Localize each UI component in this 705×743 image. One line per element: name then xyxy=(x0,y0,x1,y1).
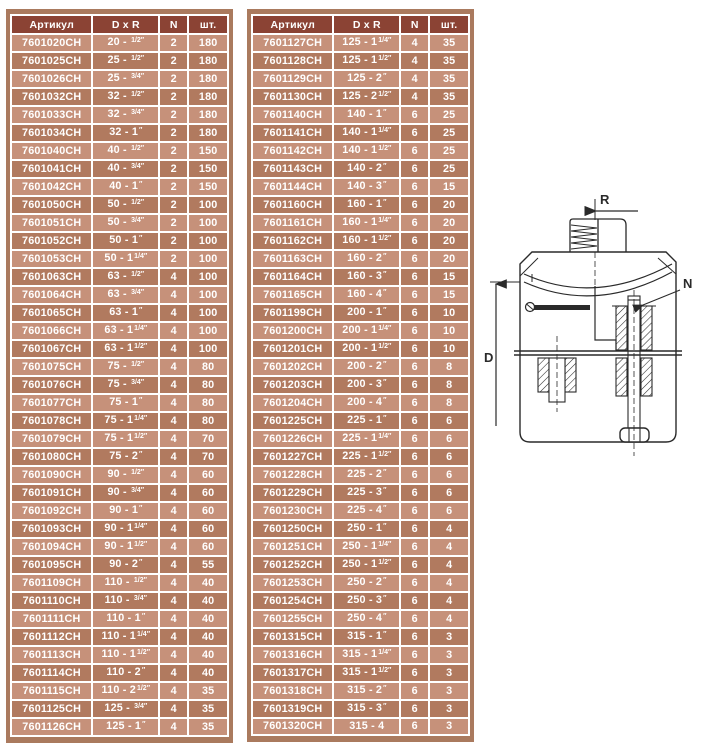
dxr-main: 250 - 2 xyxy=(347,576,382,588)
table-row: 7601320CH315 - 463 xyxy=(253,719,468,734)
dxr-main: 90 - 1 xyxy=(109,504,138,516)
n-cell: 6 xyxy=(401,161,428,177)
table-row: 7601026CH25 - 3/4″2180 xyxy=(12,71,227,87)
dxr-fraction: ″ xyxy=(383,163,386,170)
dxr-main: 40 - xyxy=(107,162,130,174)
dxr-fraction: ″ xyxy=(383,505,386,512)
n-cell: 4 xyxy=(160,485,187,501)
n-cell: 6 xyxy=(401,521,428,537)
dxr-main: 250 - 1 xyxy=(342,540,377,552)
qty-cell: 15 xyxy=(430,179,468,195)
qty-cell: 3 xyxy=(430,629,468,645)
dxr-main: 125 - 1 xyxy=(342,54,377,66)
dxr-cell: 63 - 11/2″ xyxy=(93,341,158,357)
table-row: 7601067CH63 - 11/2″4100 xyxy=(12,341,227,357)
dxr-cell: 90 - 2″ xyxy=(93,557,158,573)
dxr-fraction: ″ xyxy=(383,703,386,710)
article-cell: 7601252CH xyxy=(253,557,332,573)
table-row: 7601025CH25 - 1/2″2180 xyxy=(12,53,227,69)
dxr-main: 160 - 2 xyxy=(347,252,382,264)
n-cell: 4 xyxy=(160,683,187,699)
catalog-table-right-wrap: АртикулD x RNшт.7601127CH125 - 11/4″4357… xyxy=(247,9,474,742)
article-cell: 7601033CH xyxy=(12,107,91,123)
qty-cell: 180 xyxy=(189,125,227,141)
table-row: 7601075CH75 - 1/2″480 xyxy=(12,359,227,375)
qty-cell: 15 xyxy=(430,287,468,303)
table-row: 7601165CH160 - 4″615 xyxy=(253,287,468,303)
n-cell: 4 xyxy=(160,647,187,663)
table-row: 7601162CH160 - 11/2″620 xyxy=(253,233,468,249)
dxr-cell: 110 - 1/2″ xyxy=(93,575,158,591)
dxr-main: 225 - 3 xyxy=(347,486,382,498)
article-cell: 7601161CH xyxy=(253,215,332,231)
dxr-fraction: 1/4″ xyxy=(378,433,391,440)
table-row: 7601140CH140 - 1″625 xyxy=(253,107,468,123)
table-row: 7601163CH160 - 2″620 xyxy=(253,251,468,267)
dxr-main: 125 - 1 xyxy=(106,720,141,732)
n-cell: 2 xyxy=(160,215,187,231)
dxr-fraction: ″ xyxy=(383,523,386,530)
dxr-cell: 200 - 1″ xyxy=(334,305,399,321)
n-cell: 4 xyxy=(160,701,187,717)
n-cell: 4 xyxy=(160,467,187,483)
n-cell: 6 xyxy=(401,485,428,501)
dxr-fraction: ″ xyxy=(142,667,145,674)
table-row: 7601040CH40 - 1/2″2150 xyxy=(12,143,227,159)
article-cell: 7601127CH xyxy=(253,35,332,51)
article-cell: 7601143CH xyxy=(253,161,332,177)
qty-cell: 4 xyxy=(430,557,468,573)
qty-cell: 180 xyxy=(189,89,227,105)
dxr-cell: 315 - 11/2″ xyxy=(334,665,399,681)
qty-cell: 35 xyxy=(189,719,227,735)
dxr-fraction: 1/4″ xyxy=(378,37,391,44)
table-row: 7601076CH75 - 3/4″480 xyxy=(12,377,227,393)
article-cell: 7601227CH xyxy=(253,449,332,465)
article-cell: 7601112CH xyxy=(12,629,91,645)
table-row: 7601227CH225 - 11/2″66 xyxy=(253,449,468,465)
dxr-main: 160 - 3 xyxy=(347,270,382,282)
dxr-fraction: ″ xyxy=(383,487,386,494)
n-cell: 4 xyxy=(160,557,187,573)
dxr-fraction: 1/2″ xyxy=(131,55,144,62)
dxr-cell: 250 - 3″ xyxy=(334,593,399,609)
dxr-main: 315 - 1 xyxy=(342,666,377,678)
qty-cell: 55 xyxy=(189,557,227,573)
dxr-cell: 25 - 3/4″ xyxy=(93,71,158,87)
dxr-fraction: 1/2″ xyxy=(378,145,391,152)
dxr-main: 110 - 2 xyxy=(102,684,136,696)
dxr-main: 160 - 1 xyxy=(342,234,377,246)
n-cell: 4 xyxy=(160,431,187,447)
dxr-cell: 250 - 1″ xyxy=(334,521,399,537)
dxr-fraction: ″ xyxy=(383,379,386,386)
dxr-fraction: ″ xyxy=(383,181,386,188)
article-cell: 7601026CH xyxy=(12,71,91,87)
dxr-cell: 50 - 1″ xyxy=(93,233,158,249)
dxr-main: 225 - 1 xyxy=(342,450,377,462)
n-cell: 6 xyxy=(401,467,428,483)
article-cell: 7601130CH xyxy=(253,89,332,105)
table-row: 7601115CH110 - 21/2″435 xyxy=(12,683,227,699)
dxr-fraction: 1/2″ xyxy=(134,433,147,440)
dxr-main: 200 - 2 xyxy=(347,360,382,372)
table-row: 7601160CH160 - 1″620 xyxy=(253,197,468,213)
article-cell: 7601253CH xyxy=(253,575,332,591)
article-cell: 7601201CH xyxy=(253,341,332,357)
n-cell: 6 xyxy=(401,251,428,267)
dxr-main: 110 - 2 xyxy=(106,666,140,678)
qty-cell: 35 xyxy=(430,89,468,105)
n-cell: 4 xyxy=(160,719,187,735)
qty-cell: 3 xyxy=(430,647,468,663)
qty-cell: 10 xyxy=(430,305,468,321)
table-row: 7601201CH200 - 11/2″610 xyxy=(253,341,468,357)
dxr-fraction: 1/2″ xyxy=(131,469,144,476)
dxr-fraction: ″ xyxy=(383,109,386,116)
dxr-main: 63 - xyxy=(107,288,130,300)
table-row: 7601252CH250 - 11/2″64 xyxy=(253,557,468,573)
dxr-cell: 32 - 1″ xyxy=(93,125,158,141)
dxr-fraction: 1/2″ xyxy=(131,271,144,278)
dxr-cell: 140 - 1″ xyxy=(334,107,399,123)
n-cell: 4 xyxy=(160,395,187,411)
table-row: 7601125CH125 - 3/4″435 xyxy=(12,701,227,717)
dxr-main: 140 - 3 xyxy=(347,180,382,192)
dxr-fraction: 1/4″ xyxy=(134,523,147,530)
dxr-fraction: 3/4″ xyxy=(131,379,144,386)
table-row: 7601129CH125 - 2″435 xyxy=(253,71,468,87)
n-cell: 6 xyxy=(401,647,428,663)
table-row: 7601228CH225 - 2″66 xyxy=(253,467,468,483)
n-cell: 6 xyxy=(401,503,428,519)
qty-cell: 4 xyxy=(430,575,468,591)
internal-contour xyxy=(595,252,616,350)
dxr-main: 75 - xyxy=(107,360,130,372)
dxr-cell: 250 - 11/4″ xyxy=(334,539,399,555)
dxr-main: 250 - 1 xyxy=(342,558,377,570)
dimension-r: R xyxy=(595,192,638,220)
qty-cell: 100 xyxy=(189,269,227,285)
dxr-cell: 50 - 11/4″ xyxy=(93,251,158,267)
qty-cell: 100 xyxy=(189,197,227,213)
dxr-fraction: 3/4″ xyxy=(131,289,144,296)
qty-cell: 15 xyxy=(430,269,468,285)
dxr-fraction: ″ xyxy=(383,577,386,584)
dxr-cell: 140 - 11/2″ xyxy=(334,143,399,159)
label-n: N xyxy=(683,276,692,291)
article-cell: 7601078CH xyxy=(12,413,91,429)
col-header-1: D x R xyxy=(93,16,158,33)
dxr-cell: 63 - 1″ xyxy=(93,305,158,321)
dxr-main: 200 - 1 xyxy=(347,306,382,318)
dxr-fraction: 1/4″ xyxy=(378,541,391,548)
table-row: 7601041CH40 - 3/4″2150 xyxy=(12,161,227,177)
n-cell: 2 xyxy=(160,197,187,213)
dxr-cell: 110 - 21/2″ xyxy=(93,683,158,699)
qty-cell: 100 xyxy=(189,287,227,303)
dxr-main: 50 - xyxy=(107,216,130,228)
n-cell: 6 xyxy=(401,719,428,734)
dxr-cell: 75 - 1/2″ xyxy=(93,359,158,375)
table-row: 7601255CH250 - 4″64 xyxy=(253,611,468,627)
dxr-main: 225 - 2 xyxy=(347,468,382,480)
table-row: 7601200CH200 - 11/4″610 xyxy=(253,323,468,339)
dxr-main: 90 - 1 xyxy=(104,540,133,552)
article-cell: 7601066CH xyxy=(12,323,91,339)
dxr-fraction: ″ xyxy=(139,505,142,512)
article-cell: 7601250CH xyxy=(253,521,332,537)
split-line xyxy=(514,351,682,355)
article-cell: 7601144CH xyxy=(253,179,332,195)
qty-cell: 60 xyxy=(189,503,227,519)
dxr-fraction: ″ xyxy=(139,559,142,566)
dxr-cell: 160 - 1″ xyxy=(334,197,399,213)
dxr-main: 200 - 3 xyxy=(347,378,382,390)
article-cell: 7601065CH xyxy=(12,305,91,321)
dxr-cell: 200 - 4″ xyxy=(334,395,399,411)
table-row: 7601250CH250 - 1″64 xyxy=(253,521,468,537)
article-cell: 7601110CH xyxy=(12,593,91,609)
article-cell: 7601125CH xyxy=(12,701,91,717)
n-cell: 4 xyxy=(160,665,187,681)
dxr-cell: 125 - 2″ xyxy=(334,71,399,87)
qty-cell: 80 xyxy=(189,377,227,393)
n-cell: 6 xyxy=(401,215,428,231)
dxr-main: 50 - xyxy=(107,198,130,210)
table-row: 7601078CH75 - 11/4″480 xyxy=(12,413,227,429)
qty-cell: 80 xyxy=(189,359,227,375)
dxr-cell: 125 - 3/4″ xyxy=(93,701,158,717)
dxr-fraction: 1/2″ xyxy=(134,343,147,350)
qty-cell: 6 xyxy=(430,449,468,465)
dxr-cell: 225 - 11/2″ xyxy=(334,449,399,465)
qty-cell: 40 xyxy=(189,593,227,609)
table-row: 7601254CH250 - 3″64 xyxy=(253,593,468,609)
dxr-main: 250 - 1 xyxy=(347,522,382,534)
dxr-main: 225 - 1 xyxy=(347,414,382,426)
dimension-d: D xyxy=(484,282,520,426)
dxr-main: 125 - 1 xyxy=(342,36,377,48)
dxr-main: 40 - xyxy=(107,144,130,156)
table-row: 7601034CH32 - 1″2180 xyxy=(12,125,227,141)
catalog-table-right: АртикулD x RNшт.7601127CH125 - 11/4″4357… xyxy=(251,14,470,736)
dxr-cell: 75 - 2″ xyxy=(93,449,158,465)
dxr-main: 63 - 1 xyxy=(104,324,133,336)
article-cell: 7601093CH xyxy=(12,521,91,537)
table-row: 7601204CH200 - 4″68 xyxy=(253,395,468,411)
table-row: 7601065CH63 - 1″4100 xyxy=(12,305,227,321)
dxr-fraction: ″ xyxy=(383,289,386,296)
table-row: 7601144CH140 - 3″615 xyxy=(253,179,468,195)
n-cell: 4 xyxy=(160,539,187,555)
dxr-cell: 160 - 11/2″ xyxy=(334,233,399,249)
dxr-main: 200 - 1 xyxy=(342,342,377,354)
dxr-main: 140 - 1 xyxy=(342,126,377,138)
qty-cell: 10 xyxy=(430,323,468,339)
table-row: 7601066CH63 - 11/4″4100 xyxy=(12,323,227,339)
n-cell: 6 xyxy=(401,395,428,411)
n-cell: 6 xyxy=(401,323,428,339)
n-cell: 4 xyxy=(160,593,187,609)
dxr-fraction: 1/4″ xyxy=(137,631,150,638)
table-row: 7601093CH90 - 11/4″460 xyxy=(12,521,227,537)
qty-cell: 6 xyxy=(430,413,468,429)
n-cell: 4 xyxy=(160,287,187,303)
dxr-fraction: ″ xyxy=(142,613,145,620)
qty-cell: 8 xyxy=(430,359,468,375)
dxr-fraction: 1/2″ xyxy=(137,685,150,692)
header-row: АртикулD x RNшт. xyxy=(12,16,227,33)
col-header-0: Артикул xyxy=(253,16,332,33)
bolt-boss-lower-left xyxy=(538,336,576,412)
table-row: 7601111CH110 - 1″440 xyxy=(12,611,227,627)
dxr-main: 75 - 1 xyxy=(104,432,133,444)
article-cell: 7601200CH xyxy=(253,323,332,339)
article-cell: 7601317CH xyxy=(253,665,332,681)
table-row: 7601230CH225 - 4″66 xyxy=(253,503,468,519)
dxr-cell: 315 - 3″ xyxy=(334,701,399,717)
n-cell: 6 xyxy=(401,125,428,141)
qty-cell: 40 xyxy=(189,611,227,627)
article-cell: 7601032CH xyxy=(12,89,91,105)
dxr-main: 32 - xyxy=(107,108,130,120)
dxr-cell: 225 - 11/4″ xyxy=(334,431,399,447)
qty-cell: 60 xyxy=(189,521,227,537)
dxr-main: 50 - 1 xyxy=(109,234,138,246)
article-cell: 7601165CH xyxy=(253,287,332,303)
dxr-cell: 110 - 2″ xyxy=(93,665,158,681)
article-cell: 7601163CH xyxy=(253,251,332,267)
dxr-cell: 315 - 11/4″ xyxy=(334,647,399,663)
table-row: 7601112CH110 - 11/4″440 xyxy=(12,629,227,645)
dxr-fraction: 1/2″ xyxy=(378,55,391,62)
dxr-cell: 50 - 3/4″ xyxy=(93,215,158,231)
dxr-main: 160 - 1 xyxy=(347,198,382,210)
n-cell: 4 xyxy=(160,305,187,321)
qty-cell: 8 xyxy=(430,377,468,393)
dxr-fraction: ″ xyxy=(139,307,142,314)
dxr-main: 90 - 1 xyxy=(104,522,133,534)
col-header-3: шт. xyxy=(430,16,468,33)
dxr-cell: 315 - 2″ xyxy=(334,683,399,699)
dxr-cell: 160 - 4″ xyxy=(334,287,399,303)
qty-cell: 150 xyxy=(189,161,227,177)
dxr-main: 75 - 2 xyxy=(109,450,138,462)
dxr-cell: 225 - 3″ xyxy=(334,485,399,501)
article-cell: 7601315CH xyxy=(253,629,332,645)
dxr-fraction: 1/4″ xyxy=(378,127,391,134)
qty-cell: 6 xyxy=(430,485,468,501)
n-cell: 4 xyxy=(160,575,187,591)
dxr-fraction: ″ xyxy=(139,127,142,134)
article-cell: 7601142CH xyxy=(253,143,332,159)
dxr-cell: 75 - 11/2″ xyxy=(93,431,158,447)
col-header-0: Артикул xyxy=(12,16,91,33)
qty-cell: 25 xyxy=(430,125,468,141)
n-cell: 6 xyxy=(401,449,428,465)
terminal-element xyxy=(526,303,591,312)
dxr-fraction: 1/4″ xyxy=(378,217,391,224)
dxr-fraction: 3/4″ xyxy=(131,487,144,494)
n-cell: 6 xyxy=(401,593,428,609)
table-row: 7601229CH225 - 3″66 xyxy=(253,485,468,501)
table-row: 7601110CH110 - 3/4″440 xyxy=(12,593,227,609)
article-cell: 7601095CH xyxy=(12,557,91,573)
article-cell: 7601128CH xyxy=(253,53,332,69)
n-cell: 6 xyxy=(401,413,428,429)
dxr-fraction: ″ xyxy=(142,721,145,728)
saddle-clamp-cross-section: R xyxy=(480,190,702,472)
table-row: 7601202CH200 - 2″68 xyxy=(253,359,468,375)
article-cell: 7601067CH xyxy=(12,341,91,357)
n-cell: 6 xyxy=(401,107,428,123)
article-cell: 7601025CH xyxy=(12,53,91,69)
n-cell: 4 xyxy=(160,341,187,357)
article-cell: 7601226CH xyxy=(253,431,332,447)
article-cell: 7601129CH xyxy=(253,71,332,87)
dxr-fraction: 3/4″ xyxy=(134,703,147,710)
n-cell: 6 xyxy=(401,179,428,195)
article-cell: 7601109CH xyxy=(12,575,91,591)
n-cell: 6 xyxy=(401,665,428,681)
threaded-outlet xyxy=(570,219,626,252)
dxr-cell: 125 - 21/2″ xyxy=(334,89,399,105)
dxr-fraction: ″ xyxy=(383,397,386,404)
dxr-main: 90 - xyxy=(107,486,130,498)
dxr-main: 200 - 4 xyxy=(347,396,382,408)
table-row: 7601033CH32 - 3/4″2180 xyxy=(12,107,227,123)
n-cell: 6 xyxy=(401,359,428,375)
qty-cell: 35 xyxy=(430,35,468,51)
dxr-fraction: 3/4″ xyxy=(131,163,144,170)
dxr-cell: 63 - 1/2″ xyxy=(93,269,158,285)
dxr-fraction: ″ xyxy=(383,469,386,476)
dxr-fraction: 3/4″ xyxy=(134,595,147,602)
qty-cell: 180 xyxy=(189,53,227,69)
dxr-main: 315 - 2 xyxy=(347,684,382,696)
dxr-main: 140 - 1 xyxy=(347,108,382,120)
n-cell: 2 xyxy=(160,89,187,105)
dxr-main: 160 - 1 xyxy=(342,216,377,228)
dxr-fraction: 1/4″ xyxy=(134,415,147,422)
dxr-cell: 250 - 11/2″ xyxy=(334,557,399,573)
article-cell: 7601077CH xyxy=(12,395,91,411)
dxr-fraction: 3/4″ xyxy=(131,217,144,224)
table-row: 7601199CH200 - 1″610 xyxy=(253,305,468,321)
dxr-cell: 75 - 11/4″ xyxy=(93,413,158,429)
table-row: 7601164CH160 - 3″615 xyxy=(253,269,468,285)
article-cell: 7601202CH xyxy=(253,359,332,375)
n-cell: 4 xyxy=(160,611,187,627)
article-cell: 7601034CH xyxy=(12,125,91,141)
dxr-main: 200 - 1 xyxy=(342,324,377,336)
dxr-fraction: 1/2″ xyxy=(378,451,391,458)
n-cell: 6 xyxy=(401,233,428,249)
article-cell: 7601063CH xyxy=(12,269,91,285)
dxr-main: 90 - 2 xyxy=(109,558,138,570)
qty-cell: 25 xyxy=(430,143,468,159)
dxr-cell: 50 - 1/2″ xyxy=(93,197,158,213)
dxr-fraction: ″ xyxy=(383,631,386,638)
dxr-fraction: ″ xyxy=(383,361,386,368)
table-row: 7601316CH315 - 11/4″63 xyxy=(253,647,468,663)
n-cell: 2 xyxy=(160,107,187,123)
qty-cell: 35 xyxy=(189,683,227,699)
dxr-cell: 110 - 11/2″ xyxy=(93,647,158,663)
table-row: 7601114CH110 - 2″440 xyxy=(12,665,227,681)
qty-cell: 60 xyxy=(189,467,227,483)
